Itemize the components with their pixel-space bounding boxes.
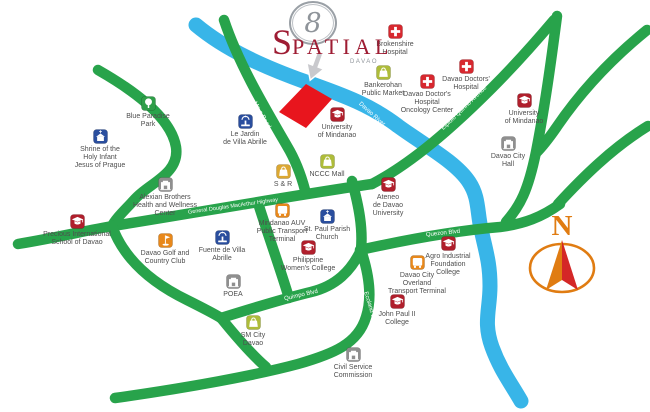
landmark-university-of-mindanao-bajada: Universityof Mindanao [482, 93, 566, 126]
cap-icon [330, 107, 345, 122]
building-icon [158, 177, 173, 192]
landmark-label: Le Jardinde Villa Abrille [203, 131, 287, 147]
landmark-label: PhilippineWomen's College [266, 257, 350, 273]
landmark-label: Precious InternationalSchool of Davao [35, 231, 119, 247]
logo-wordmark: SPATIAL [272, 24, 393, 60]
church-icon [93, 129, 108, 144]
landmark-label: Alexian BrothersHealth and WellnessCente… [123, 194, 207, 218]
landmark-nccc-mall: NCCC Mall [285, 154, 369, 179]
bus-icon [410, 255, 425, 270]
landmark-davao-city-hall: Davao CityHall [466, 136, 550, 169]
cap-icon [381, 177, 396, 192]
landmark-sm-city-davao: SM CityDavao [211, 315, 295, 348]
landmark-label: Universityof Mindanao [295, 124, 379, 140]
landmark-poea: POEA [191, 274, 275, 299]
cap-icon [390, 294, 405, 309]
landmark-label: Davao CityOverlandTransport Terminal [375, 272, 459, 296]
vicinity-map: Ma-a RoadGeneral Douglas MacArthur Highw… [0, 0, 650, 412]
landmark-le-jardin-de-villa-abrille: Le Jardinde Villa Abrille [203, 114, 287, 147]
bag-icon [246, 315, 261, 330]
landmark-label: John Paul IICollege [355, 311, 439, 327]
landmark-blue-paradise-park: Blue ParadisePark [106, 96, 190, 129]
landmark-label: SM CityDavao [211, 332, 295, 348]
landmark-civil-service-commission: Civil ServiceCommission [311, 347, 395, 380]
compass: N [527, 212, 597, 299]
bag-icon [320, 154, 335, 169]
cap-icon [301, 240, 316, 255]
cap-icon [517, 93, 532, 108]
building-icon [226, 274, 241, 289]
landmark-label: Davao CityHall [466, 153, 550, 169]
cap-icon [441, 236, 456, 251]
cap-icon [70, 214, 85, 229]
landmark-label: Fuente de VillaAbrille [180, 247, 264, 263]
landmark-university-of-mindanao: Universityof Mindanao [295, 107, 379, 140]
church-icon [320, 209, 335, 224]
landmark-shrine-of-the-holy-infant-jesus-of-prague: Shrine of theHoly InfantJesus of Prague [58, 129, 142, 170]
landmark-label: S & R [241, 181, 325, 189]
compass-north-label: N [527, 212, 597, 241]
tree-icon [141, 96, 156, 111]
landmark-john-paul-ii-college: John Paul IICollege [355, 294, 439, 327]
logo-subtitle: DAVAO [350, 59, 378, 65]
landmark-alexian-brothers-health-and-wellness-center: Alexian BrothersHealth and WellnessCente… [123, 177, 207, 218]
building-icon [346, 347, 361, 362]
landmark-label: Davao Doctor'sHospitalOncology Center [385, 91, 469, 115]
fountain-icon [215, 230, 230, 245]
landmark-label: Blue ParadisePark [106, 113, 190, 129]
landmark-label: Universityof Mindanao [482, 110, 566, 126]
landmark-davao-city-overland-transport-terminal: Davao CityOverlandTransport Terminal [375, 255, 459, 296]
landmark-label: Civil ServiceCommission [311, 364, 395, 380]
landmark-st-paul-parish-church: St. Paul ParishChurch [285, 209, 369, 242]
compass-rose-icon [527, 238, 597, 294]
fountain-icon [238, 114, 253, 129]
landmark-philippine-womens-college: PhilippineWomen's College [266, 240, 350, 273]
brand-logo: 8 SPATIAL DAVAO [0, 0, 650, 80]
landmark-label: Shrine of theHoly InfantJesus of Prague [58, 146, 142, 170]
landmark-label: POEA [191, 291, 275, 299]
building-icon [501, 136, 516, 151]
landmark-precious-international-school-of-davao: Precious InternationalSchool of Davao [35, 214, 119, 247]
golf-icon [158, 233, 173, 248]
